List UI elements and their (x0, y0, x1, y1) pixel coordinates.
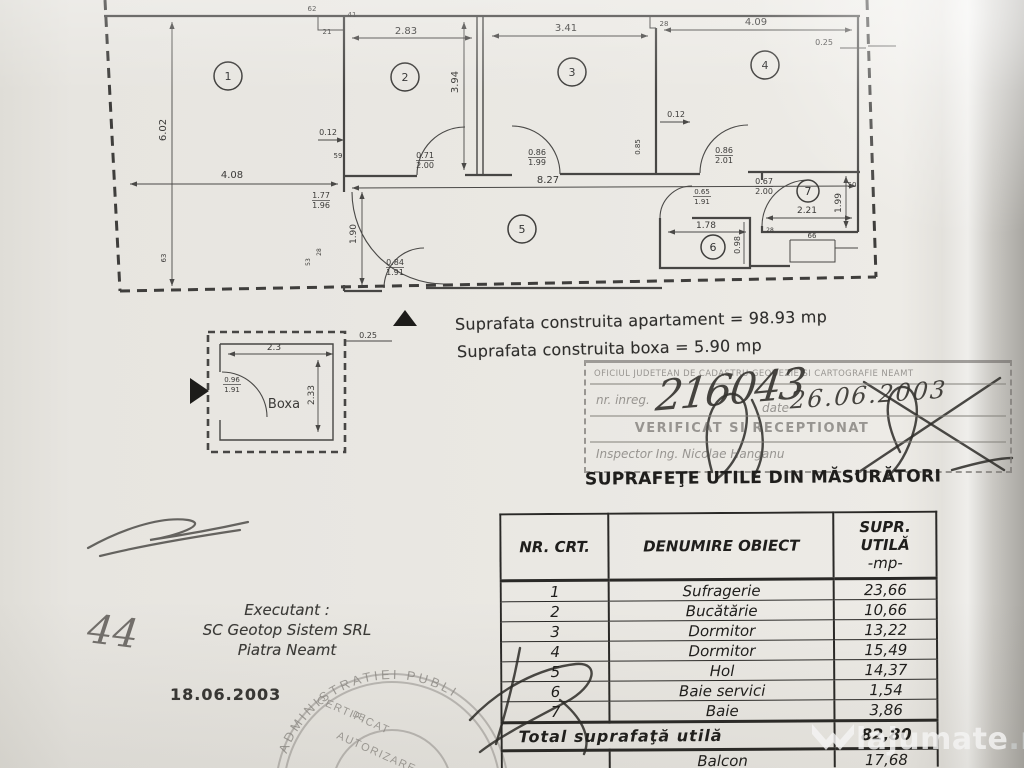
dimension-label: 0.12 (319, 128, 337, 137)
executant-title: Executant : (162, 600, 412, 620)
table-row: 2 Bucătărie 10,66 (501, 599, 937, 622)
dimension-label: 66 (808, 232, 817, 240)
room-number: 2 (402, 71, 409, 84)
table-body: 1 Sufragerie 23,66 2 Bucătărie 10,66 3 D… (501, 578, 938, 723)
north-triangle-icon (393, 310, 417, 326)
dimension-label: 28 (660, 20, 669, 28)
door-arcs (352, 125, 808, 288)
dimension-label: 50 (848, 181, 857, 189)
table-row: 4 Dormitor 15,49 (501, 639, 937, 662)
dimension-label: 1.90 (349, 224, 359, 244)
cell-nr: 2 (501, 601, 609, 622)
header-supr-line1: SUPR. (836, 518, 935, 537)
room-number: 6 (710, 241, 717, 254)
room-number: 4 (762, 59, 769, 72)
stamp-verificat-line: VERIFICAT SI RECEPTIONAT (612, 421, 892, 436)
table-header: NR. CRT. DENUMIRE OBIECT SUPR. UTILĂ -mp… (500, 512, 936, 581)
executant-date: 18.06.2003 (170, 685, 281, 704)
dimension-label: 6.02 (158, 119, 169, 141)
dimension-label: 3.41 (555, 23, 577, 34)
dimension-label: 1.91 (694, 198, 710, 206)
dimension-label: 59 (334, 152, 343, 160)
header-supr-line2: UTILĂ (836, 536, 935, 555)
cell-nr (502, 750, 610, 768)
dimension-label: 4.08 (221, 170, 243, 181)
dimension-label: 21 (323, 28, 332, 36)
cell-suprafata: 23,66 (834, 578, 937, 600)
dimension-label: 28 (766, 227, 774, 234)
watermark-name: lajumate (856, 722, 1008, 757)
stamp-date-label: date (762, 401, 789, 415)
header-supr-line3: -mp- (836, 554, 935, 573)
cell-nr: 4 (501, 641, 609, 662)
room-circles: 1234567 (214, 51, 819, 259)
dimension-label: 1.99 (834, 193, 844, 213)
dimension-label: 2.33 (307, 385, 317, 405)
watermark-tld: .ro (1008, 722, 1024, 757)
table-row: 5 Hol 14,37 (501, 659, 937, 682)
registration-stamp-box: OFICIUL JUDETEAN DE CADASTRU GEODEZIE SI… (584, 360, 1012, 473)
dimension-label: 41 (348, 11, 357, 19)
dimension-label: 2.83 (395, 26, 417, 37)
cell-denumire: Baie servici (610, 680, 835, 701)
dimension-label: 2.00 (416, 161, 434, 170)
dimension-label: 1.78 (696, 221, 716, 231)
cell-denumire: Hol (609, 660, 834, 681)
dimension-label: 0.86 (528, 148, 546, 157)
dimension-label: 0.67 (755, 177, 773, 186)
cell-nr: 1 (501, 580, 609, 602)
dimension-label: 53 (305, 258, 312, 266)
scanned-document-page: Boxa 1234567 6241212.833.41284.090.256.0… (0, 0, 1024, 768)
total-label: Total suprafaţă utilă (502, 721, 836, 751)
room-number: 5 (519, 223, 526, 236)
dimension-label: 0.85 (634, 139, 642, 155)
cell-suprafata: 13,22 (834, 619, 937, 640)
header-nr-crt: NR. CRT. (500, 514, 609, 581)
dimension-label: 3.94 (450, 71, 461, 93)
dimension-label: 0.98 (733, 236, 742, 254)
header-supr-utila: SUPR. UTILĂ -mp- (834, 512, 937, 579)
dimension-label: 62 (308, 5, 317, 13)
signature-scribble-left (88, 519, 248, 556)
executant-city: Piatra Neamt (162, 640, 412, 660)
executant-company: SC Geotop Sistem SRL (162, 620, 412, 640)
cell-denumire: Balcon (610, 749, 835, 768)
boxa-pointer-icon (190, 378, 209, 404)
apartment-boundary (105, 0, 876, 291)
dimension-label: 1.91 (386, 268, 404, 277)
table-row: 3 Dormitor 13,22 (501, 619, 937, 642)
dimension-label: 8.27 (537, 175, 559, 186)
dimension-label: 0.84 (386, 258, 404, 267)
cell-denumire: Dormitor (609, 620, 834, 641)
dimension-label: 1.96 (312, 201, 330, 210)
cell-denumire: Bucătărie (609, 600, 834, 621)
dimension-label: 1.77 (312, 191, 330, 200)
cell-suprafata: 10,66 (834, 599, 937, 620)
stamp-inspector-line: Inspector Ing. Nicolae Hanganu (596, 447, 784, 461)
cell-nr: 3 (501, 621, 609, 642)
dimension-label: 0.96 (224, 376, 240, 384)
cell-nr: 7 (501, 701, 609, 723)
boxa-label: Boxa (268, 397, 300, 412)
dimension-label: 0.71 (416, 151, 434, 160)
dimension-label: 0.86 (715, 146, 733, 155)
executant-block: Executant : SC Geotop Sistem SRL Piatra … (162, 600, 412, 660)
cell-suprafata: 15,49 (834, 639, 937, 660)
cell-denumire: Baie (610, 700, 835, 722)
stamp-date-value: 26.06.2003 (789, 375, 948, 414)
dimension-label: 2.21 (797, 206, 817, 216)
cell-nr: 6 (501, 681, 609, 702)
dimension-label: 1.91 (224, 386, 240, 394)
cell-denumire: Dormitor (609, 640, 834, 661)
room-number: 7 (805, 185, 812, 198)
dimension-label: 2.01 (715, 156, 733, 165)
table-row: 6 Baie servici 1,54 (501, 679, 937, 702)
dimension-label: 0.25 (359, 331, 377, 340)
room-number: 3 (569, 66, 576, 79)
dimension-label: 0.12 (667, 110, 685, 119)
dimension-label: 1.99 (528, 158, 546, 167)
cell-suprafata: 14,37 (835, 659, 938, 680)
dimension-label: 4.09 (745, 17, 767, 28)
section-heading: SUPRAFEŢE UTILE DIN MĂSURĂTORI (585, 466, 941, 489)
cell-nr: 5 (501, 661, 609, 682)
watermark: lajumate.ro (810, 718, 1024, 760)
dimension-label: 28 (316, 248, 323, 256)
room-number: 1 (225, 70, 232, 83)
table-row: 1 Sufragerie 23,66 (501, 578, 937, 602)
stamp-nr-label: nr. inreg. (596, 393, 650, 407)
header-denumire: DENUMIRE OBIECT (609, 512, 835, 580)
dimension-label: 0.25 (815, 38, 833, 47)
handwritten-mark: 44 (84, 606, 141, 658)
dimension-label: 63 (160, 254, 168, 263)
dimension-label: 0.65 (694, 188, 710, 196)
watermark-logo-icon (810, 718, 856, 760)
dimension-label: 2.3 (267, 343, 281, 353)
cell-suprafata: 1,54 (835, 679, 938, 700)
cell-denumire: Sufragerie (609, 579, 834, 601)
dimension-label: 2.00 (755, 187, 773, 196)
